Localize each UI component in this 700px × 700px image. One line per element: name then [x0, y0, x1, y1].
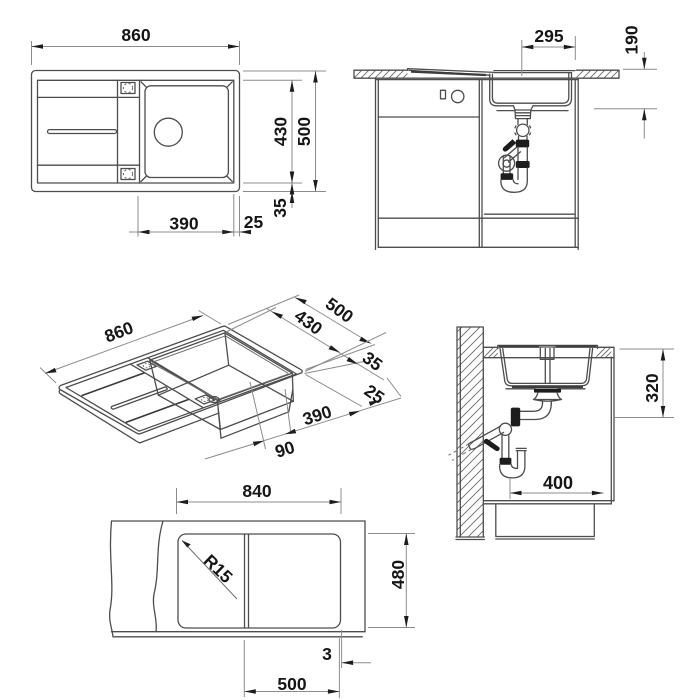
svg-text:3: 3: [322, 644, 332, 664]
svg-text:500: 500: [294, 117, 314, 146]
svg-text:860: 860: [121, 25, 150, 45]
svg-text:390: 390: [169, 214, 198, 234]
svg-text:400: 400: [543, 473, 573, 493]
svg-text:35: 35: [270, 198, 290, 218]
svg-text:500: 500: [277, 674, 306, 694]
svg-text:190: 190: [622, 25, 642, 54]
svg-text:480: 480: [388, 560, 408, 589]
svg-text:25: 25: [244, 212, 264, 232]
svg-text:295: 295: [534, 26, 563, 46]
svg-text:430: 430: [271, 117, 291, 146]
svg-text:320: 320: [642, 373, 662, 402]
svg-text:840: 840: [242, 481, 271, 501]
